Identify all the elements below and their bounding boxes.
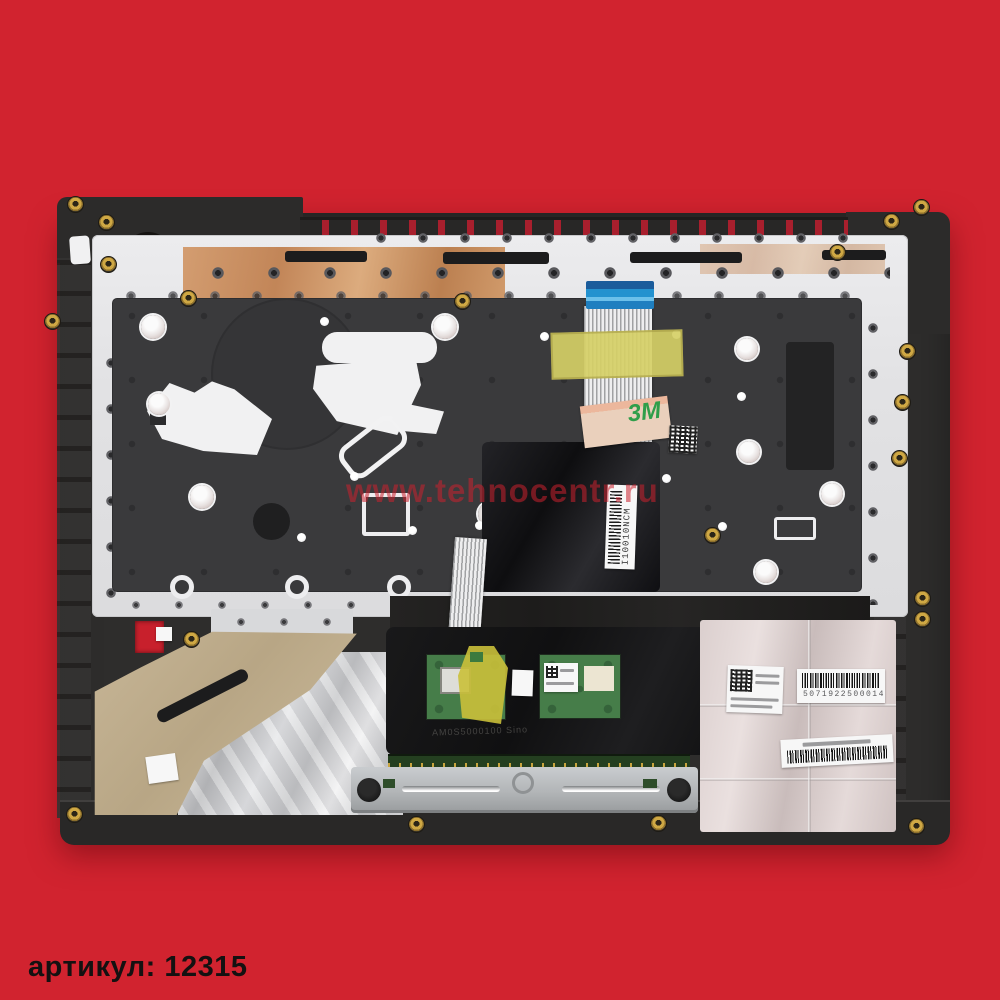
foil-crease bbox=[808, 620, 811, 832]
touchpad-mini-label bbox=[512, 670, 534, 697]
plate-screw-col-right bbox=[862, 305, 884, 605]
kapton-tape bbox=[550, 329, 683, 379]
gold-screw bbox=[100, 256, 117, 273]
foil-barcode-label-2 bbox=[780, 734, 893, 768]
pull-tab bbox=[253, 503, 290, 540]
label-qr bbox=[546, 666, 558, 678]
copper-screw-row bbox=[190, 262, 890, 284]
foil-barcode-2 bbox=[787, 745, 888, 763]
label-text-line bbox=[730, 704, 772, 708]
dome-rivet bbox=[738, 441, 760, 463]
dome-rivet bbox=[821, 483, 843, 505]
flex-green-pad bbox=[470, 652, 483, 662]
bracket-slot bbox=[402, 786, 500, 792]
rivet-dot bbox=[737, 392, 746, 401]
wire-end-patch bbox=[145, 753, 178, 784]
dome-rivet bbox=[755, 561, 777, 583]
gold-screw bbox=[98, 214, 115, 231]
cream-sticker bbox=[584, 666, 614, 691]
qr-mini-label bbox=[668, 425, 697, 453]
dome-rivet bbox=[148, 393, 170, 415]
plate-slot bbox=[285, 251, 367, 262]
label-text-line bbox=[546, 682, 574, 685]
foil-crease bbox=[700, 778, 896, 781]
rubber-grommet bbox=[357, 778, 381, 802]
foil-barcode bbox=[802, 673, 880, 688]
foil-barcode-label: 5071922500014 bbox=[797, 669, 885, 703]
gold-screw bbox=[67, 196, 84, 213]
silver-bar-rivets bbox=[220, 615, 345, 629]
white-chip-label bbox=[156, 627, 172, 641]
gold-screw bbox=[183, 631, 200, 648]
gold-screw bbox=[829, 244, 846, 261]
gold-screw bbox=[891, 450, 908, 467]
touchpad-flex-cable bbox=[458, 646, 508, 724]
gold-screw bbox=[66, 806, 83, 823]
dummy-card bbox=[786, 342, 834, 470]
gold-screw bbox=[899, 343, 916, 360]
rivet-dot bbox=[320, 317, 329, 326]
gold-screw bbox=[180, 290, 197, 307]
white-ring bbox=[170, 575, 194, 599]
3m-logo: 3M bbox=[626, 397, 662, 428]
rivet-dot bbox=[297, 533, 306, 542]
white-outline-rect-small bbox=[774, 517, 816, 540]
dome-rivet bbox=[190, 485, 214, 509]
plate-screw-row bbox=[360, 228, 860, 248]
gold-screw bbox=[408, 816, 425, 833]
gold-screw bbox=[650, 815, 667, 832]
rivet-dot bbox=[540, 332, 549, 341]
gold-screw bbox=[913, 199, 930, 216]
dome-rivet bbox=[141, 315, 165, 339]
gold-screw bbox=[704, 527, 721, 544]
label-text-line bbox=[755, 674, 779, 678]
gold-screw bbox=[914, 590, 931, 607]
left-edge-ribs bbox=[57, 258, 91, 818]
bracket-hole bbox=[512, 772, 534, 794]
bracket-pcb-bit bbox=[383, 779, 395, 788]
label-text-line bbox=[803, 739, 871, 747]
gold-screw bbox=[454, 293, 471, 310]
hinge-metal-tab bbox=[69, 235, 91, 264]
foil-qr-code bbox=[730, 669, 753, 692]
label-text-line bbox=[755, 681, 779, 685]
rivet-dot bbox=[408, 526, 417, 535]
product-photo: 3M I10010NCM AM0S5000100 Sino bbox=[0, 0, 1000, 1000]
label-text-line bbox=[731, 697, 779, 702]
artikul-caption: артикул: 12315 bbox=[28, 951, 248, 984]
dome-rivet bbox=[736, 338, 758, 360]
foil-barcode-number: 5071922500014 bbox=[803, 690, 885, 699]
white-ring bbox=[285, 575, 309, 599]
watermark: www.tehnocentr.ru bbox=[346, 472, 659, 510]
label-text-line bbox=[560, 669, 574, 672]
bracket-pcb-bit bbox=[643, 779, 657, 788]
foil-right bbox=[700, 620, 896, 832]
keyboard-cable-connector bbox=[586, 281, 654, 309]
metal-bracket bbox=[351, 767, 698, 813]
dome-rivet bbox=[433, 315, 457, 339]
rubber-grommet bbox=[667, 778, 691, 802]
foil-qr-label bbox=[726, 665, 784, 714]
gold-screw bbox=[908, 818, 925, 835]
rivet-dot bbox=[662, 474, 671, 483]
gold-screw bbox=[894, 394, 911, 411]
gold-screw bbox=[883, 213, 900, 230]
touchpad-label-right bbox=[544, 663, 578, 692]
membrane-cutout-bar bbox=[322, 332, 437, 363]
gold-screw bbox=[914, 611, 931, 628]
gold-screw bbox=[44, 313, 61, 330]
